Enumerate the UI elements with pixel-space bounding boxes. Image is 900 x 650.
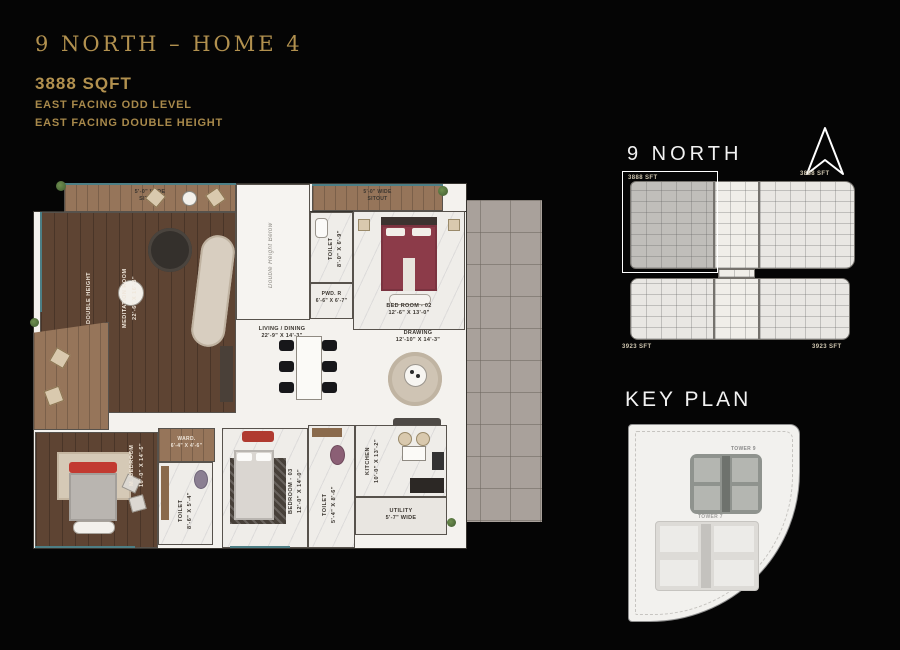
cushion-dot-graphic [416, 374, 420, 378]
tower-selected-block[interactable] [690, 454, 762, 514]
pillow-graphic [412, 228, 431, 236]
tower-selected-label: TOWER 9 [731, 446, 756, 452]
piano-graphic [148, 228, 192, 272]
mini-upper-right-wing[interactable] [759, 181, 855, 269]
bed-graphic [69, 473, 117, 521]
room-label-kitchen: KITCHEN [365, 435, 371, 487]
plant-graphic [447, 518, 456, 527]
bed-graphic [381, 217, 437, 225]
window-strip [312, 184, 443, 186]
facing-note-1: EAST FACING ODD LEVEL [35, 99, 192, 111]
dining-chair-graphic [322, 382, 337, 393]
north-panel-title: 9 NORTH [627, 143, 742, 166]
pillow-graphic [386, 228, 405, 236]
plant-graphic [30, 318, 39, 327]
north-arrow-icon [804, 126, 846, 176]
tower-unit-cell [714, 560, 754, 586]
tower-unit-cell [694, 486, 720, 510]
kitchen-table-graphic [402, 446, 426, 461]
dining-chair-graphic [322, 361, 337, 372]
room-dims-toilet-top: 8'-0" X 6'-9" [337, 224, 343, 274]
window-strip [64, 183, 236, 185]
counter-graphic [410, 478, 444, 493]
room-label-utility: UTILITY 5'-7" WIDE [355, 508, 447, 523]
window-strip [230, 546, 290, 548]
tower-other-block[interactable] [655, 521, 759, 591]
room-dims-master: 16'-0" X 14'-6" [139, 438, 145, 492]
bench-graphic [73, 521, 115, 534]
sink-graphic [315, 218, 328, 238]
sofa-graphic [242, 431, 274, 442]
patio-table-graphic [182, 191, 197, 206]
tower-unit-cell [714, 526, 754, 552]
tower-unit-cell [660, 560, 698, 586]
window-strip [35, 546, 135, 548]
cushion-dot-graphic [410, 370, 414, 374]
room-label-drawing: DRAWING 12'-10" X 14'-3" [378, 330, 458, 345]
mini-core-upper [714, 181, 759, 269]
plant-graphic [56, 181, 66, 191]
tower-unit-cell [732, 486, 758, 510]
tower-core [701, 524, 711, 588]
tower-unit-cell [660, 526, 698, 552]
selected-unit-highlight-box[interactable] [622, 171, 718, 273]
sft-label-upper-left: 3888 SFT [628, 175, 658, 181]
room-dims-bedroom3: 12'-0" X 14'-0" [297, 460, 303, 522]
room-label-toilet-top: TOILET [328, 226, 334, 272]
room-label-ward: WARD. 6'-4" X 4'-6" [158, 436, 215, 450]
room-dims-toilet-master: 8'-6" X 5'-4" [187, 486, 193, 536]
room-label-bedroom3: BEDROOM - 03 [288, 456, 294, 526]
room-label-pwd: PWD. R 6'-6" X 6'-7" [310, 291, 353, 305]
dining-chair-graphic [279, 361, 294, 372]
room-label-toilet3: TOILET [322, 482, 328, 528]
room-label-dh-below: Double Height Below [268, 210, 274, 300]
room-label-sitout-tr: 5'-0" WIDE SITOUT [312, 189, 443, 203]
nightstand-graphic [448, 219, 460, 231]
room-dims-kitchen: 10'-0" X 13'-2" [374, 433, 380, 489]
mini-core-connector [718, 269, 755, 278]
room-dims-meditation: 22'-6" X 16'-3" [132, 250, 138, 346]
sft-label-upper-right: 3888 SFT [800, 171, 830, 177]
room-label-bedroom2: BED ROOM - 02 12'-6" X 13'-0" [353, 303, 465, 318]
bed-runner-graphic [403, 258, 415, 291]
pillow-graphic [237, 453, 252, 461]
key-plan-title: KEY PLAN [625, 388, 751, 412]
sitout-left [33, 322, 109, 430]
tower-unit-cell [694, 458, 720, 482]
room-label-toilet-master: TOILET [178, 488, 184, 534]
tv-console-graphic [220, 346, 233, 402]
mini-lower-right-wing[interactable] [759, 278, 850, 340]
tower-core [722, 456, 730, 512]
vanity-graphic [312, 428, 342, 437]
brochure-page: 9 NORTH – HOME 4 3888 SQFT EAST FACING O… [0, 0, 900, 650]
area-stat: 3888 SQFT [35, 74, 132, 94]
tower-other-label: TOWER 7 [698, 514, 723, 520]
sft-label-lower-left: 3923 SFT [622, 344, 652, 350]
pillow-graphic [256, 453, 271, 461]
nightstand-graphic [358, 219, 370, 231]
dining-chair-graphic [322, 340, 337, 351]
wc-graphic [330, 445, 345, 465]
mini-lower-left-wing[interactable] [630, 278, 714, 340]
dining-chair-graphic [279, 340, 294, 351]
room-label-master: M. BEDROOM [129, 436, 135, 494]
room-label-meditation: MEDITATION ROOM [122, 240, 128, 356]
window-strip [40, 212, 42, 312]
room-dims-toilet3: 5'-4" X 8'-6" [331, 480, 337, 530]
fridge-graphic [432, 452, 444, 470]
facing-note-2: EAST FACING DOUBLE HEIGHT [35, 117, 223, 129]
dining-chair-graphic [279, 382, 294, 393]
stool-graphic [416, 432, 430, 446]
wc-graphic [194, 470, 208, 489]
page-title: 9 NORTH – HOME 4 [35, 32, 303, 56]
mini-core-lower [714, 278, 759, 340]
dining-table-graphic [296, 336, 322, 400]
tower-unit-cell [732, 458, 758, 482]
vanity-graphic [161, 466, 169, 520]
sft-label-lower-right: 3923 SFT [812, 344, 842, 350]
plant-graphic [438, 186, 448, 196]
pillow-graphic [69, 462, 117, 473]
stool-graphic [398, 432, 412, 446]
